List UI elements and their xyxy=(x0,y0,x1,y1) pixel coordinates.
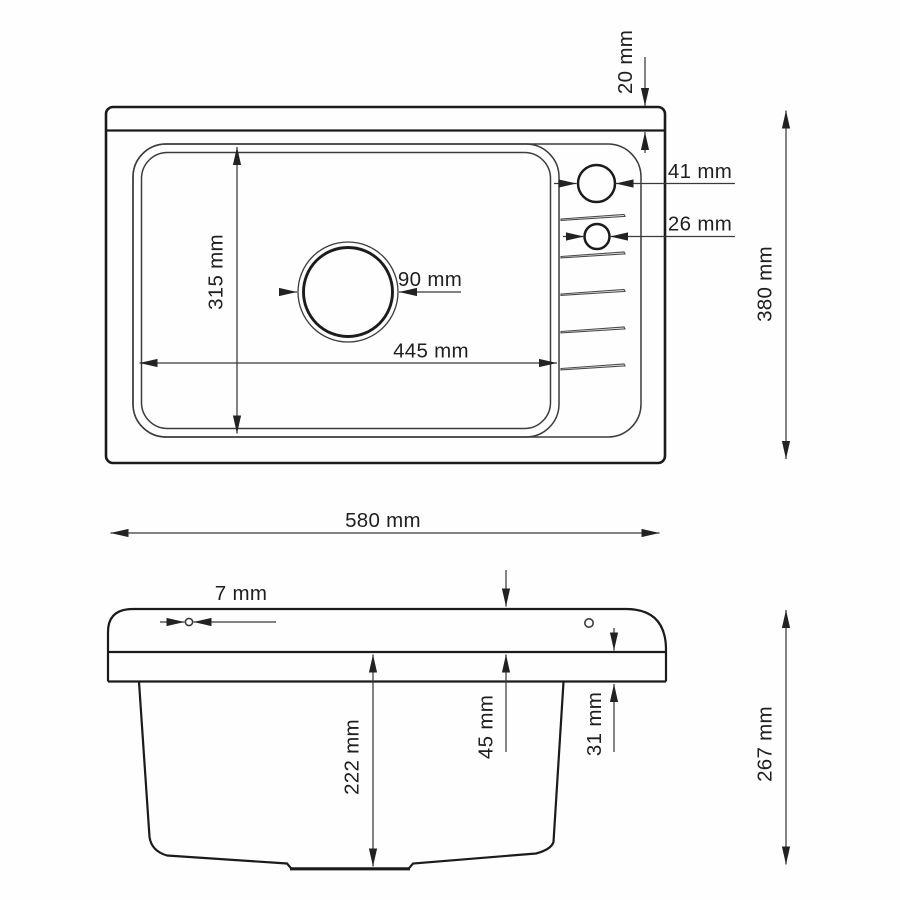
drainer-groove xyxy=(561,214,625,220)
dim-label-445mm: 445 mm xyxy=(393,340,469,363)
dim-label-267mm: 267 mm xyxy=(754,706,777,782)
dim-bowl-length: 445 mm xyxy=(140,340,558,364)
tap-hole-large xyxy=(578,165,615,202)
dim-label-20mm: 20 mm xyxy=(614,30,637,94)
dim-bowl-width: 315 mm xyxy=(205,147,238,434)
basin-outer-rim xyxy=(133,144,559,437)
dim-label-380mm: 380 mm xyxy=(754,246,777,322)
basin-inner-rim xyxy=(142,153,551,429)
side-rim-band-sides xyxy=(108,652,666,682)
tap-hole-small xyxy=(585,224,610,249)
drain-outer-ring xyxy=(298,242,398,342)
dim-label-26mm: 26 mm xyxy=(668,213,732,236)
side-rim-cap xyxy=(108,609,666,652)
drainer-groove xyxy=(561,252,625,258)
technical-drawing-canvas: 20 mm 41 mm 26 mm 90 mm 315 mm 445 xyxy=(0,0,900,900)
dim-label-7mm: 7 mm xyxy=(215,582,267,605)
drain-hole xyxy=(304,248,393,337)
dim-label-31mm: 31 mm xyxy=(583,692,606,756)
dim-tap-hole-small: 26 mm xyxy=(563,213,735,237)
dim-edge-height: 31 mm xyxy=(583,628,614,756)
dim-rim-hole: 7 mm xyxy=(160,582,276,622)
sink-outer-edge xyxy=(106,107,665,463)
drainer-groove xyxy=(561,327,625,333)
drainer-groove xyxy=(561,364,625,370)
side-view: 7 mm 45 mm 31 mm 222 mm 267 mm xyxy=(108,570,786,869)
top-view: 20 mm 41 mm 26 mm 90 mm 315 mm 445 xyxy=(106,30,786,533)
dim-label-580mm: 580 mm xyxy=(345,509,421,532)
dim-label-222mm: 222 mm xyxy=(341,719,364,795)
dim-overall-depth: 380 mm xyxy=(754,111,787,460)
dim-label-90mm: 90 mm xyxy=(398,268,462,291)
dim-label-41mm: 41 mm xyxy=(668,160,732,183)
drainer-groove xyxy=(561,289,625,295)
dim-front-rim-depth: 20 mm xyxy=(614,30,645,153)
dim-rim-height: 45 mm xyxy=(475,570,507,759)
dim-overall-width: 580 mm xyxy=(111,509,660,533)
deck-hole xyxy=(585,619,593,627)
drainer-grooves xyxy=(561,214,625,370)
rim-hole-7mm xyxy=(185,618,192,625)
dim-label-45mm: 45 mm xyxy=(475,695,498,759)
dim-overall-height: 267 mm xyxy=(754,610,787,865)
sink-dimension-drawing: 20 mm 41 mm 26 mm 90 mm 315 mm 445 xyxy=(0,0,900,900)
dim-bowl-depth: 222 mm xyxy=(341,655,374,867)
dim-label-315mm: 315 mm xyxy=(205,234,228,310)
